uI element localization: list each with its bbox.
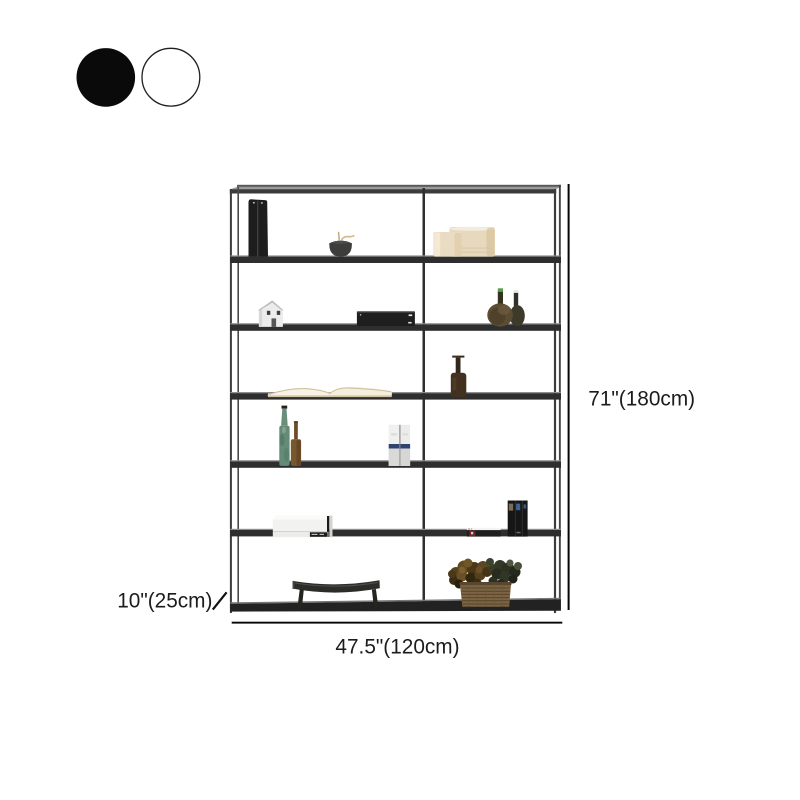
svg-text:10"(25cm): 10"(25cm) (117, 589, 212, 612)
svg-text:47.5"(120cm): 47.5"(120cm) (335, 635, 459, 658)
svg-text:71"(180cm): 71"(180cm) (588, 388, 695, 411)
